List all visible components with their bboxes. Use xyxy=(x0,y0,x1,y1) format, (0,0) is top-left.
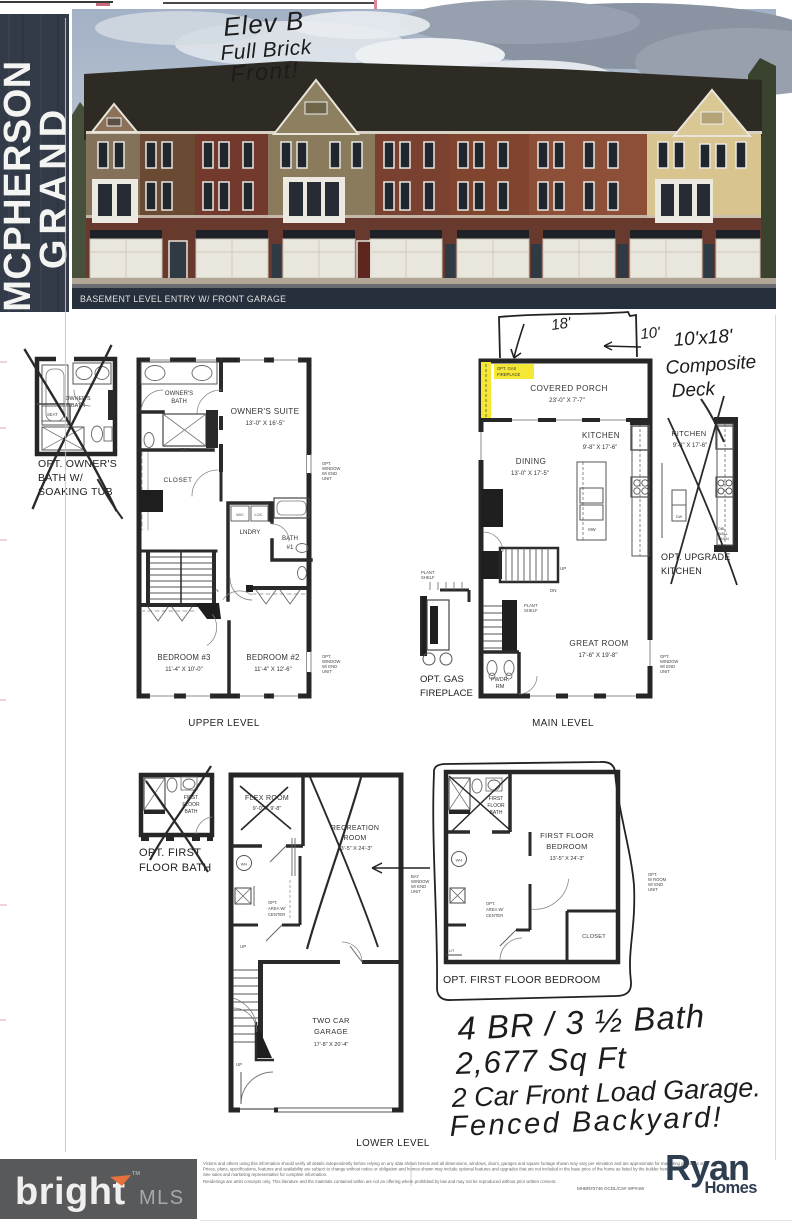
svg-text:9'-8" X 17'-6": 9'-8" X 17'-6" xyxy=(673,443,708,449)
svg-text:W/C: W/C xyxy=(236,512,244,517)
svg-text:MLS: MLS xyxy=(139,1187,185,1209)
svg-text:SHELF: SHELF xyxy=(524,608,538,613)
svg-text:17'-8" X 20'-4": 17'-8" X 20'-4" xyxy=(314,1042,349,1048)
svg-text:UNIT: UNIT xyxy=(322,669,332,674)
svg-text:UP: UP xyxy=(240,944,246,949)
svg-text:LOC.: LOC. xyxy=(254,512,263,517)
svg-text:AREA W/: AREA W/ xyxy=(268,906,286,911)
svg-text:RECREATION: RECREATION xyxy=(331,825,379,832)
svg-text:BEDROOM #2: BEDROOM #2 xyxy=(246,653,299,662)
svg-text:FIRST FLOOR: FIRST FLOOR xyxy=(540,831,594,840)
svg-text:Victims and others using this: Victims and others using this informatio… xyxy=(203,1161,709,1166)
svg-text:2,677 Sq Ft: 2,677 Sq Ft xyxy=(454,1040,628,1081)
svg-text:UNIT: UNIT xyxy=(648,887,658,892)
svg-text:RM: RM xyxy=(496,684,505,690)
svg-text:See sales and marketing repres: See sales and marketing representative f… xyxy=(203,1172,327,1177)
svg-text:13'-5" X 24'-3": 13'-5" X 24'-3" xyxy=(550,856,585,862)
svg-text:FIRST: FIRST xyxy=(489,796,503,802)
svg-text:13'-0" X 16'-5": 13'-0" X 16'-5" xyxy=(245,420,284,427)
svg-text:UP: UP xyxy=(560,566,566,571)
svg-text:Renderings are artist concepts: Renderings are artist concepts only. Thi… xyxy=(203,1179,557,1184)
svg-text:COVERED PORCH: COVERED PORCH xyxy=(530,384,608,393)
svg-text:13'-5" X 24'-3": 13'-5" X 24'-3" xyxy=(338,846,373,852)
svg-text:WH: WH xyxy=(456,858,463,863)
svg-text:BEDROOM: BEDROOM xyxy=(546,842,588,851)
svg-text:UT: UT xyxy=(449,948,455,953)
svg-text:CENTER: CENTER xyxy=(268,912,285,917)
svg-text:LOWER LEVEL: LOWER LEVEL xyxy=(356,1138,430,1149)
svg-text:CENTER: CENTER xyxy=(486,913,503,918)
svg-text:bright: bright xyxy=(15,1171,126,1213)
svg-text:TWO CAR: TWO CAR xyxy=(312,1016,350,1025)
svg-text:Deck: Deck xyxy=(671,379,717,402)
svg-text:OPT. GAS: OPT. GAS xyxy=(420,674,464,685)
svg-text:PWDR.: PWDR. xyxy=(491,677,510,683)
svg-text:UPPER LEVEL: UPPER LEVEL xyxy=(188,718,260,729)
svg-text:ROOM: ROOM xyxy=(344,835,367,842)
svg-text:10'x18': 10'x18' xyxy=(673,326,735,351)
svg-text:11'-4" X 12'-6": 11'-4" X 12'-6" xyxy=(254,667,291,673)
svg-text:OPT. FIRST FLOOR BEDROOM: OPT. FIRST FLOOR BEDROOM xyxy=(443,974,600,986)
svg-text:BATH: BATH xyxy=(185,809,198,815)
svg-text:WH: WH xyxy=(241,862,248,867)
svg-text:23'-0" X 7'-7": 23'-0" X 7'-7" xyxy=(549,397,585,404)
svg-text:BEDROOM #3: BEDROOM #3 xyxy=(157,653,210,662)
svg-text:UP: UP xyxy=(236,1062,242,1067)
svg-text:LNDRY: LNDRY xyxy=(240,529,261,536)
svg-text:BASEMENT LEVEL ENTRY W/ FRONT: BASEMENT LEVEL ENTRY W/ FRONT GARAGE xyxy=(80,294,286,304)
svg-text:FLOOR: FLOOR xyxy=(487,803,505,809)
svg-text:BATH: BATH xyxy=(171,399,187,405)
svg-text:Homes: Homes xyxy=(704,1179,757,1197)
svg-text:MW: MW xyxy=(588,527,595,532)
svg-text:OPT.: OPT. xyxy=(486,901,495,906)
svg-text:OWNER'S: OWNER'S xyxy=(165,391,193,397)
svg-text:11'-4" X 10'-0": 11'-4" X 10'-0" xyxy=(165,667,202,673)
svg-text:TM: TM xyxy=(132,1171,140,1177)
svg-text:AREA W/: AREA W/ xyxy=(486,907,504,912)
svg-text:DN: DN xyxy=(212,588,219,593)
svg-text:CLOSET: CLOSET xyxy=(163,477,192,484)
svg-text:SEAT: SEAT xyxy=(179,447,190,452)
svg-text:#1: #1 xyxy=(287,544,294,551)
svg-text:OWNER'S SUITE: OWNER'S SUITE xyxy=(231,407,300,416)
svg-text:OPT. GAS: OPT. GAS xyxy=(497,366,517,371)
svg-text:OPT.: OPT. xyxy=(268,900,277,905)
svg-text:10': 10' xyxy=(640,324,662,343)
svg-text:18': 18' xyxy=(550,314,573,334)
svg-text:FIREPLACE: FIREPLACE xyxy=(420,688,473,699)
svg-text:DW: DW xyxy=(676,515,683,519)
svg-text:UNIT: UNIT xyxy=(411,889,421,894)
svg-text:OPT. UPGRADE: OPT. UPGRADE xyxy=(661,552,730,562)
svg-text:MHBR#3746 OCDL/CS# WP#4W: MHBR#3746 OCDL/CS# WP#4W xyxy=(577,1186,645,1191)
svg-text:GARAGE: GARAGE xyxy=(314,1027,348,1036)
svg-text:9'-8" X 17'-6": 9'-8" X 17'-6" xyxy=(583,445,618,451)
svg-text:FLOOR BATH: FLOOR BATH xyxy=(139,862,211,874)
svg-text:FIREPLACE: FIREPLACE xyxy=(497,372,520,377)
svg-text:BATH: BATH xyxy=(282,535,298,542)
svg-text:UNIT: UNIT xyxy=(660,669,670,674)
svg-text:DINING: DINING xyxy=(516,457,546,466)
svg-text:MAIN LEVEL: MAIN LEVEL xyxy=(532,718,594,729)
svg-text:KITCHEN: KITCHEN xyxy=(582,431,620,440)
svg-text:UNIT: UNIT xyxy=(322,476,332,481)
svg-text:DBL: DBL xyxy=(718,527,725,531)
svg-text:GREAT ROOM: GREAT ROOM xyxy=(569,639,628,648)
svg-text:Front!: Front! xyxy=(230,56,301,87)
svg-text:SEAT: SEAT xyxy=(47,412,58,417)
svg-text:17'-6" X 19'-8": 17'-6" X 19'-8" xyxy=(578,652,617,659)
svg-text:GRAND: GRAND xyxy=(33,105,75,269)
svg-text:KITCHEN: KITCHEN xyxy=(661,566,702,576)
svg-text:13'-0" X 17'-5": 13'-0" X 17'-5" xyxy=(511,471,549,477)
svg-text:CLOSET: CLOSET xyxy=(582,934,606,940)
svg-text:SHELF: SHELF xyxy=(421,575,435,580)
svg-text:DN: DN xyxy=(550,588,557,593)
svg-text:Prices, plans, specifications,: Prices, plans, specifications, features … xyxy=(203,1167,673,1172)
